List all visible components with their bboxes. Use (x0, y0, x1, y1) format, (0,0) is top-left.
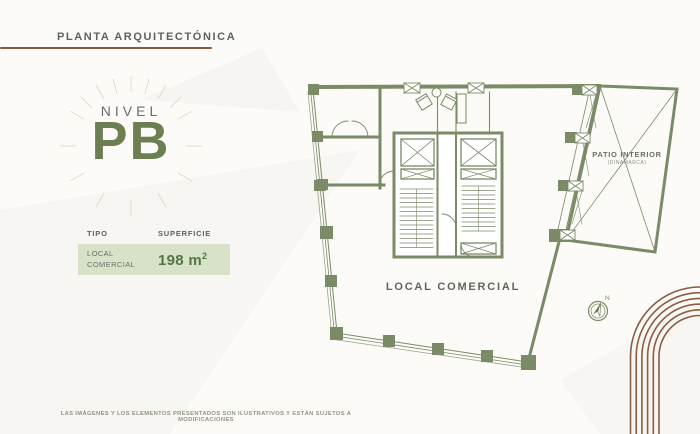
patio-interior-label: PATIO INTERIOR (583, 150, 671, 159)
local-comercial-area-label: LOCAL COMERCIAL (368, 281, 538, 293)
disclaimer-text: LAS IMÁGENES Y LOS ELEMENTOS PRESENTADOS… (50, 411, 362, 423)
corner-arcs-decoration (0, 0, 700, 434)
patio-interior-sublabel: (DINAMARCA) (583, 160, 671, 166)
